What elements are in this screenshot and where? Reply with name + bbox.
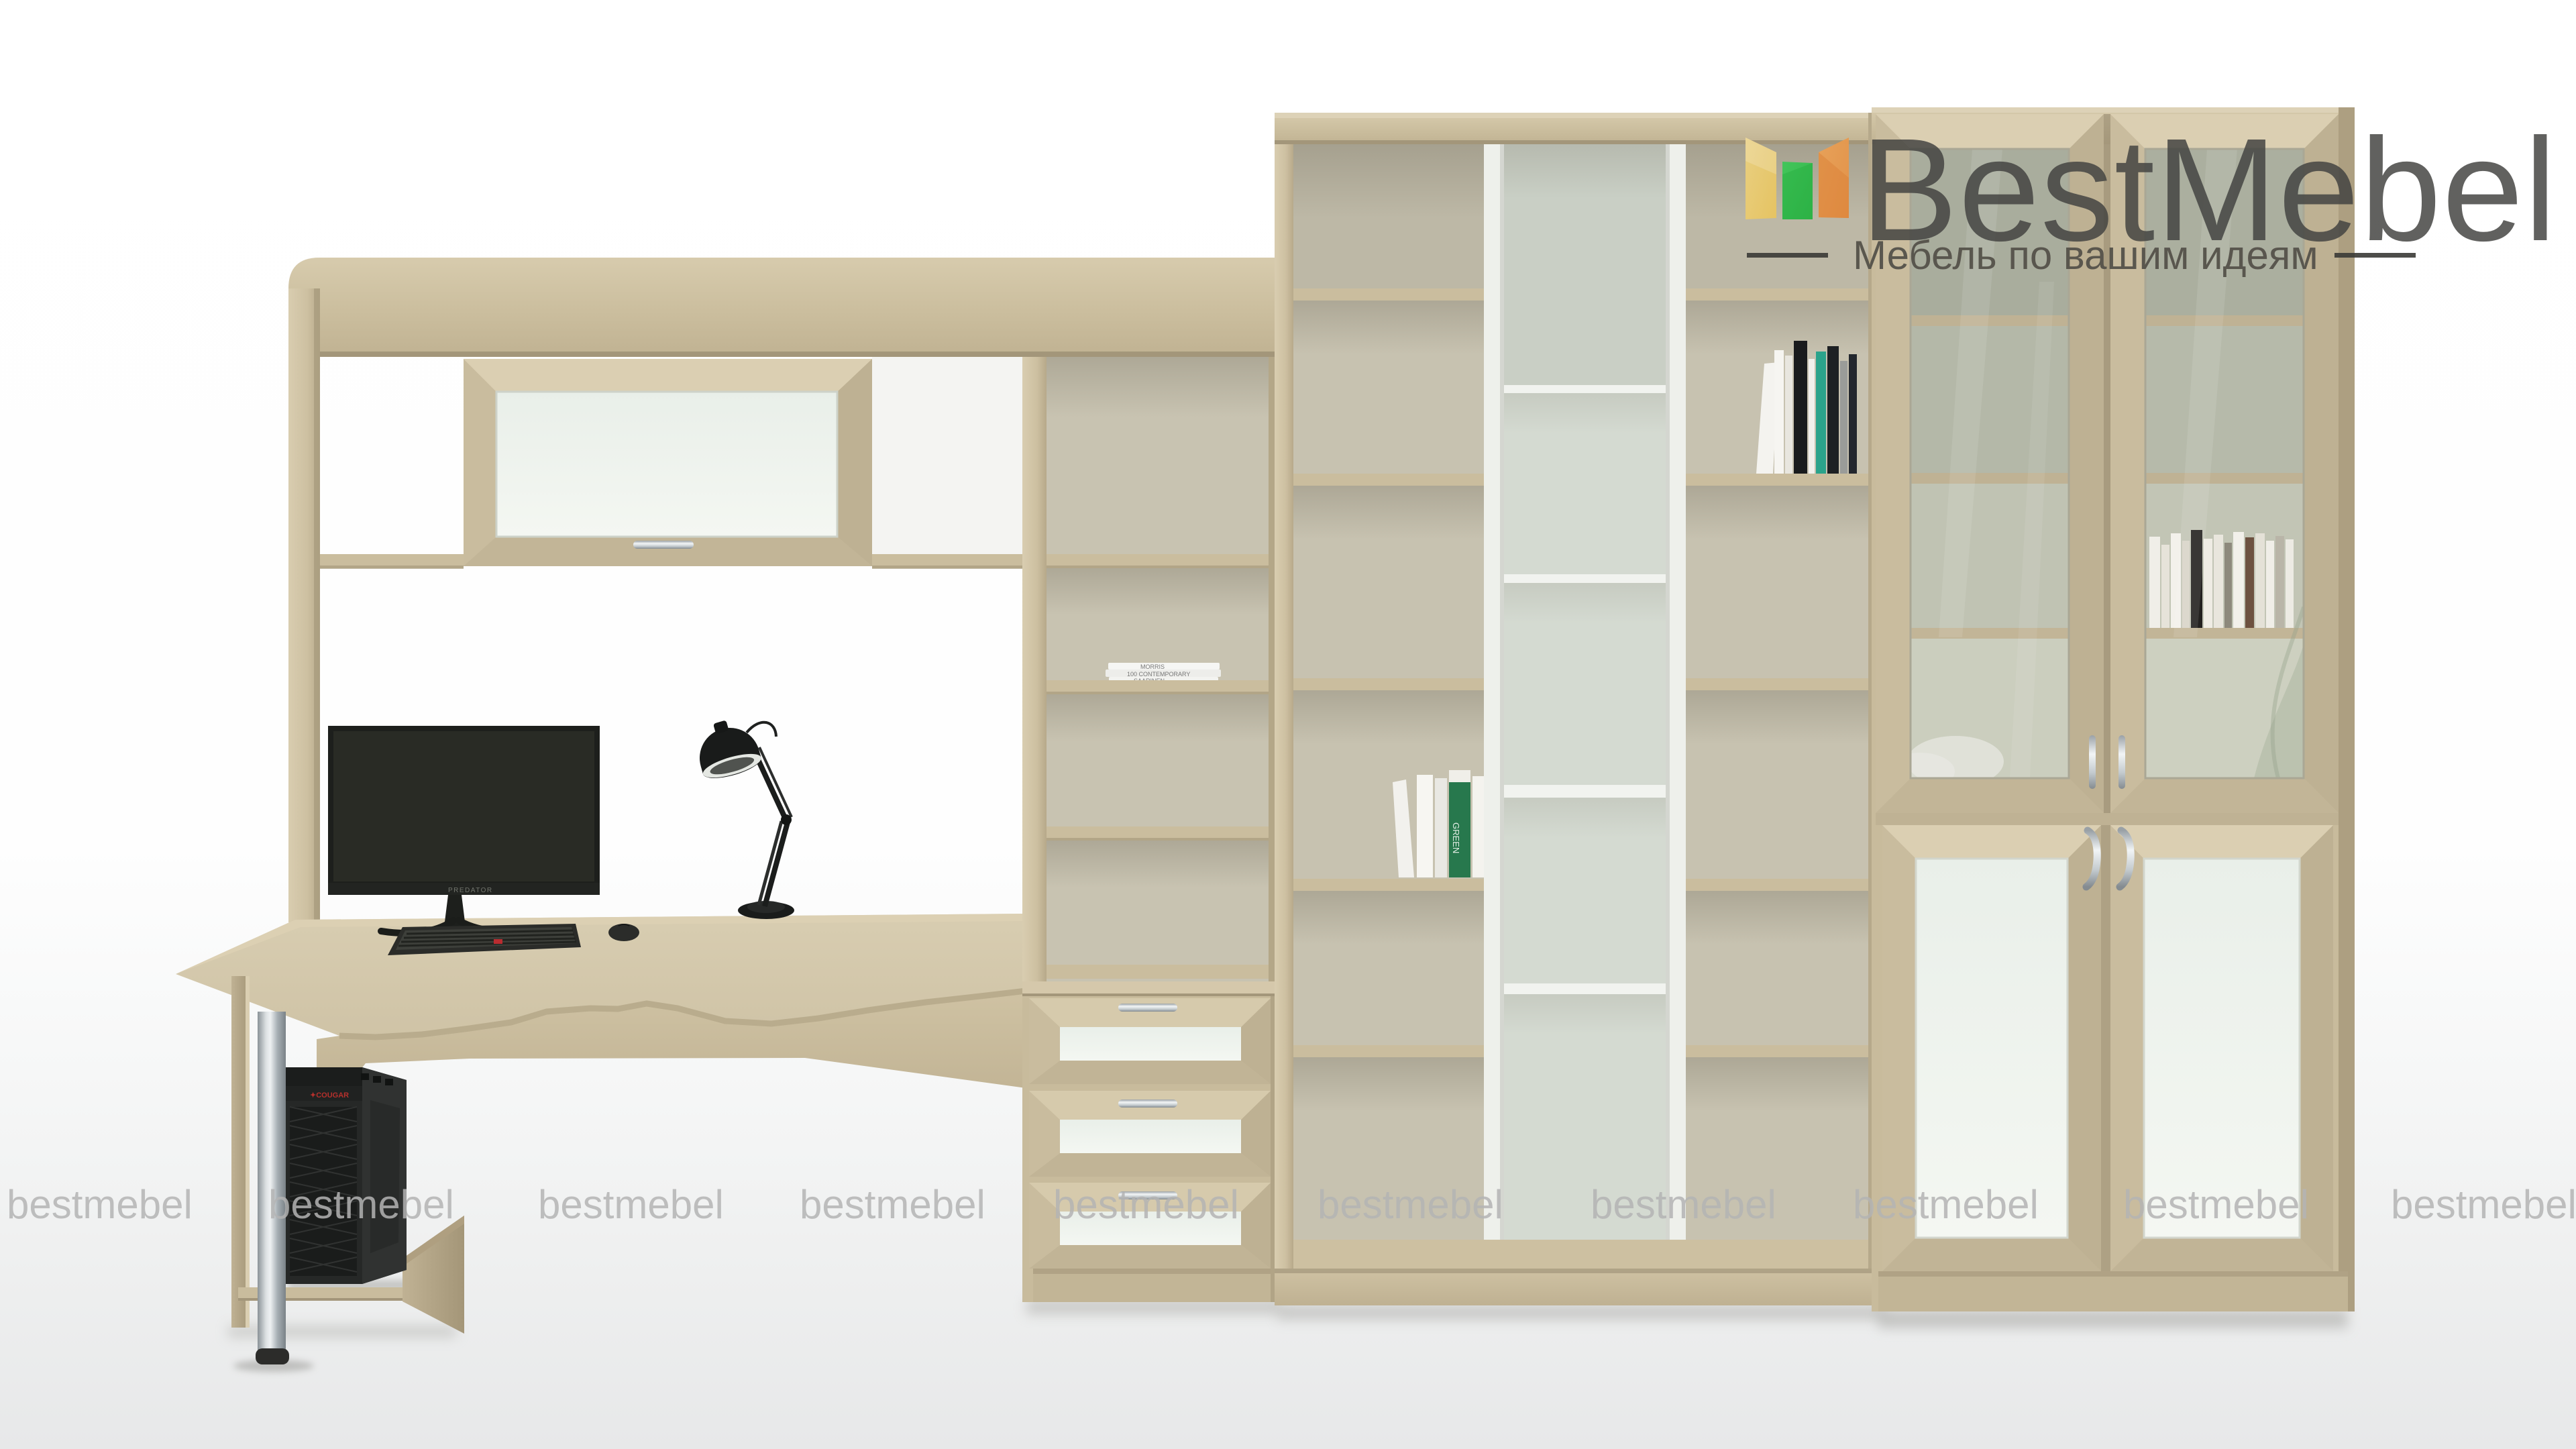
svg-text:bestmebel: bestmebel — [2391, 1182, 2576, 1227]
svg-text:bestmebel: bestmebel — [1053, 1182, 1239, 1227]
svg-text:bestmebel: bestmebel — [800, 1182, 985, 1227]
svg-text:MORRIS: MORRIS — [1140, 663, 1165, 670]
svg-text:PREDATOR: PREDATOR — [448, 887, 493, 894]
svg-text:bestmebel: bestmebel — [538, 1182, 724, 1227]
svg-text:bestmebel: bestmebel — [1853, 1182, 2039, 1227]
svg-text:GREEN: GREEN — [1451, 822, 1461, 853]
svg-text:100 CONTEMPORARY: 100 CONTEMPORARY — [1127, 671, 1190, 678]
svg-text:✦COUGAR: ✦COUGAR — [310, 1091, 349, 1099]
svg-text:Мебель по вашим идеям: Мебель по вашим идеям — [1853, 233, 2318, 278]
svg-text:bestmebel: bestmebel — [2123, 1182, 2309, 1227]
svg-text:bestmebel: bestmebel — [1591, 1182, 1776, 1227]
svg-text:bestmebel: bestmebel — [1318, 1182, 1503, 1227]
svg-text:bestmebel: bestmebel — [7, 1182, 193, 1227]
svg-text:bestmebel: bestmebel — [268, 1182, 454, 1227]
